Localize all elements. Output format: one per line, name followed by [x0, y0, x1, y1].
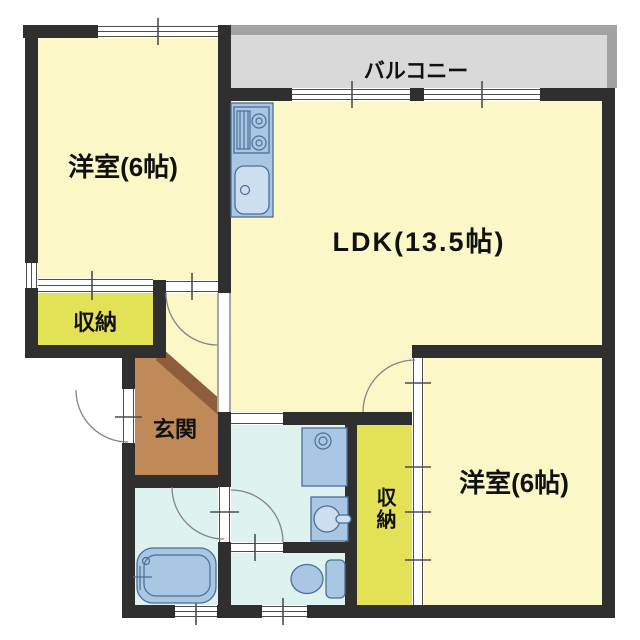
washing-machine-pan	[302, 428, 347, 486]
wall-segment	[25, 288, 38, 345]
wall-segment	[122, 358, 135, 389]
toilet-bowl	[291, 565, 323, 594]
storage-east-label: 収納	[373, 487, 396, 531]
ldk-label: LDK(13.5帖)	[332, 227, 505, 257]
wall-segment	[135, 475, 231, 488]
wall-segment	[231, 88, 292, 101]
wall-segment	[25, 25, 38, 263]
floorplan-svg: バルコニー 洋室(6帖) LDK(13.5帖) 洋室(6帖) 収納 収納 玄関	[0, 0, 640, 640]
wall-segment	[218, 25, 231, 293]
kitchen-unit	[231, 103, 273, 217]
entrance-label: 玄関	[153, 417, 197, 442]
room-se-label: 洋室(6帖)	[459, 468, 569, 498]
wall-segment	[153, 280, 166, 358]
window-nw-left	[25, 263, 38, 288]
toilet-tank	[326, 560, 345, 598]
opening-hall-ldk	[217, 293, 231, 412]
balcony-border-top	[228, 25, 617, 35]
wall-segment	[283, 542, 345, 553]
wall-segment	[283, 412, 424, 425]
vanity-sink	[311, 497, 351, 541]
bathtub	[133, 548, 216, 603]
floorplan: バルコニー 洋室(6帖) LDK(13.5帖) 洋室(6帖) 収納 収納 玄関	[0, 0, 640, 640]
vanity-faucet	[336, 515, 351, 523]
stove	[234, 107, 269, 153]
wall-segment	[122, 443, 135, 618]
wall-segment	[410, 88, 424, 101]
room-nw-label: 洋室(6帖)	[68, 152, 178, 182]
opening-washroom-entry	[231, 412, 283, 425]
balcony-border-right	[607, 25, 617, 88]
wall-segment	[25, 345, 165, 358]
balcony-label: バルコニー	[364, 60, 469, 83]
wall-segment	[412, 345, 615, 358]
storage-west-label: 収納	[73, 310, 117, 335]
